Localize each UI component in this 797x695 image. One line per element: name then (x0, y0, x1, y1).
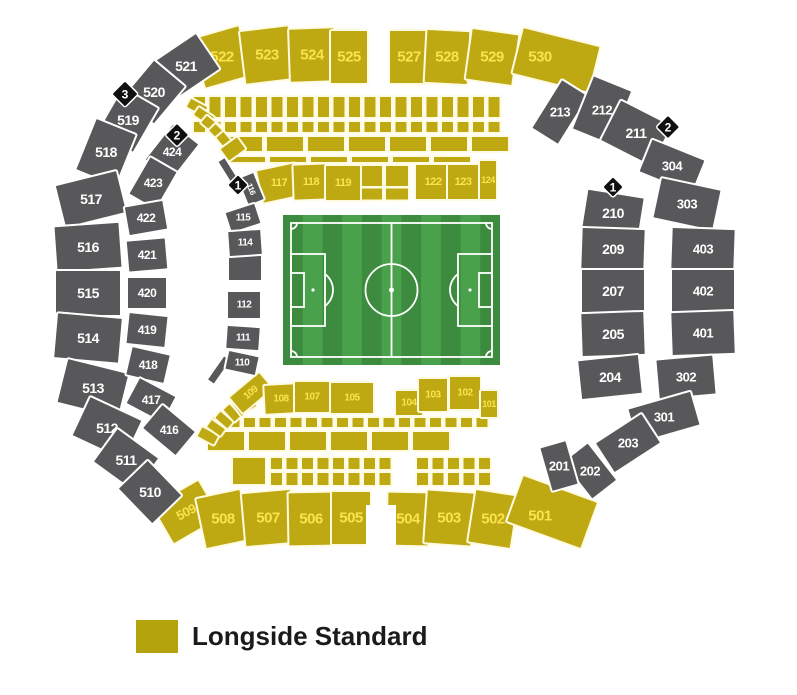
section-514: 514 (53, 312, 123, 364)
section-label-502: 502 (481, 511, 505, 528)
section-label-508: 508 (211, 511, 235, 528)
section-515: 515 (55, 270, 121, 316)
section-207: 207 (581, 269, 645, 313)
section-label-518: 518 (95, 144, 118, 160)
stadium-seat-map: 5225235245255275285295301171181191221231… (0, 0, 797, 695)
section-422: 422 (124, 200, 169, 236)
section-506[interactable]: 506 (288, 492, 335, 547)
section-label-423: 423 (144, 176, 163, 190)
section-label-417: 417 (142, 393, 161, 407)
section-label-207: 207 (602, 283, 625, 299)
section-204: 204 (577, 354, 643, 400)
section-119[interactable]: 119 (325, 165, 361, 201)
gate-marker-label: 3 (122, 88, 129, 102)
section-label-517: 517 (80, 191, 103, 207)
section-label-124: 124 (481, 175, 495, 185)
section-418: 418 (125, 346, 171, 384)
section-label-403: 403 (693, 242, 713, 257)
section-label-419: 419 (138, 323, 157, 337)
gate-marker-label: 1 (235, 179, 242, 193)
section-label-204: 204 (599, 369, 622, 385)
section-label-118: 118 (303, 176, 320, 188)
section-530[interactable]: 530 (511, 27, 600, 93)
section-505[interactable]: 505 (331, 491, 371, 545)
section-label-529: 529 (480, 49, 504, 66)
section-label-401: 401 (693, 326, 713, 341)
section-label-201: 201 (549, 459, 569, 474)
section-label-524: 524 (300, 47, 325, 64)
section-label-528: 528 (435, 49, 459, 66)
section-label-416: 416 (160, 423, 179, 437)
section-label-520: 520 (143, 84, 166, 100)
section-label-303: 303 (677, 197, 697, 212)
section-label-210: 210 (602, 205, 625, 221)
legend-swatch-longside-standard (136, 620, 178, 653)
section-label-108: 108 (273, 394, 289, 405)
section-103[interactable]: 103 (418, 378, 448, 412)
section-516: 516 (53, 222, 122, 272)
section-403: 403 (670, 227, 735, 271)
section-421: 421 (126, 237, 169, 272)
section-label-105: 105 (344, 393, 360, 404)
section-112: 112 (227, 291, 261, 319)
section-label-211: 211 (625, 125, 647, 141)
section-label-301: 301 (654, 410, 674, 425)
section-122[interactable]: 122 (415, 164, 451, 200)
section-label-420: 420 (138, 286, 157, 300)
section-label-302: 302 (676, 370, 696, 385)
section-label-111: 111 (236, 333, 251, 344)
section-label-205: 205 (602, 326, 625, 342)
section-label-503: 503 (437, 510, 461, 527)
section-105[interactable]: 105 (330, 382, 374, 414)
section-205: 205 (580, 311, 645, 357)
section-label-505: 505 (339, 510, 363, 527)
section-label-507: 507 (256, 510, 280, 527)
section-102[interactable]: 102 (449, 376, 481, 410)
section-label-117: 117 (271, 177, 288, 189)
section-101[interactable]: 101 (480, 390, 498, 418)
section-label-501: 501 (528, 508, 552, 525)
section-529[interactable]: 529 (465, 28, 520, 86)
section-label-123: 123 (455, 176, 472, 188)
section-label-213: 213 (550, 105, 570, 120)
section-label-513: 513 (82, 380, 105, 396)
section-label-104: 104 (401, 398, 417, 409)
gate-marker-label: 2 (665, 121, 672, 135)
section-label-102: 102 (457, 388, 473, 399)
section-123[interactable]: 123 (447, 164, 479, 200)
gate-marker-label: 1 (610, 181, 617, 195)
section-label-101: 101 (482, 399, 496, 409)
section-label-421: 421 (138, 248, 157, 262)
section-label-422: 422 (137, 211, 156, 225)
section-label-511: 511 (115, 452, 137, 468)
section-209: 209 (580, 227, 645, 271)
legend-label: Longside Standard (192, 621, 427, 652)
section-label-523: 523 (255, 47, 279, 64)
section-label-402: 402 (693, 284, 713, 299)
football-pitch (283, 215, 500, 365)
section-524[interactable]: 524 (288, 27, 336, 83)
gate-marker-label: 2 (174, 129, 181, 143)
section-label-103: 103 (425, 390, 441, 401)
section-label-514: 514 (77, 330, 100, 346)
section-517: 517 (55, 170, 128, 228)
section-label-107: 107 (304, 392, 320, 403)
section-419: 419 (125, 312, 168, 348)
section-label-530: 530 (528, 49, 552, 66)
section-114: 114 (227, 229, 263, 257)
section-label-527: 527 (397, 49, 421, 66)
section-label-521: 521 (175, 58, 198, 74)
section-label-516: 516 (77, 239, 100, 255)
section-525[interactable]: 525 (330, 30, 368, 84)
section-402: 402 (671, 269, 735, 313)
section-label-203: 203 (618, 436, 638, 451)
section-label-115: 115 (236, 213, 252, 224)
section-label-515: 515 (77, 285, 100, 301)
section-label-119: 119 (335, 177, 352, 189)
section-label-112: 112 (237, 300, 253, 311)
section-label-504: 504 (396, 511, 421, 528)
stadium-map: 5225235245255275285295301171181191221231… (0, 0, 797, 695)
section-523[interactable]: 523 (239, 25, 295, 85)
section-label-418: 418 (139, 358, 158, 372)
section-107[interactable]: 107 (294, 381, 330, 413)
section-label-114: 114 (238, 238, 254, 249)
section-label-424: 424 (163, 145, 182, 159)
section-110: 110 (224, 350, 259, 376)
section-528[interactable]: 528 (424, 29, 471, 85)
section-label-212: 212 (592, 103, 612, 118)
section-401: 401 (670, 310, 735, 356)
section-label-510: 510 (139, 484, 162, 500)
section-label-519: 519 (117, 112, 140, 128)
section-420: 420 (127, 277, 167, 309)
section-label-525: 525 (337, 49, 361, 66)
section-label-506: 506 (299, 511, 323, 528)
section-124[interactable]: 124 (479, 160, 497, 200)
legend: Longside Standard (136, 620, 427, 653)
section-label-122: 122 (425, 176, 442, 188)
section-label-209: 209 (602, 241, 625, 257)
section-111: 111 (225, 325, 261, 351)
section-303: 303 (652, 177, 721, 231)
section-label-304: 304 (662, 159, 683, 174)
section-label-110: 110 (235, 358, 251, 369)
section-label-202: 202 (580, 464, 600, 479)
